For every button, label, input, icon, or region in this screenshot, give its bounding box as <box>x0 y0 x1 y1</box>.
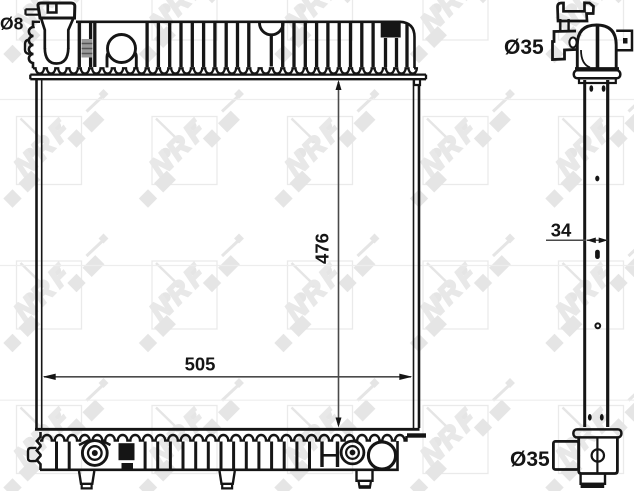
svg-text:505: 505 <box>185 354 216 375</box>
svg-text:34: 34 <box>551 220 572 241</box>
svg-text:Ø35: Ø35 <box>504 36 544 59</box>
svg-text:476: 476 <box>312 233 333 264</box>
svg-text:Ø35: Ø35 <box>510 448 550 471</box>
svg-text:Ø8: Ø8 <box>0 14 24 34</box>
